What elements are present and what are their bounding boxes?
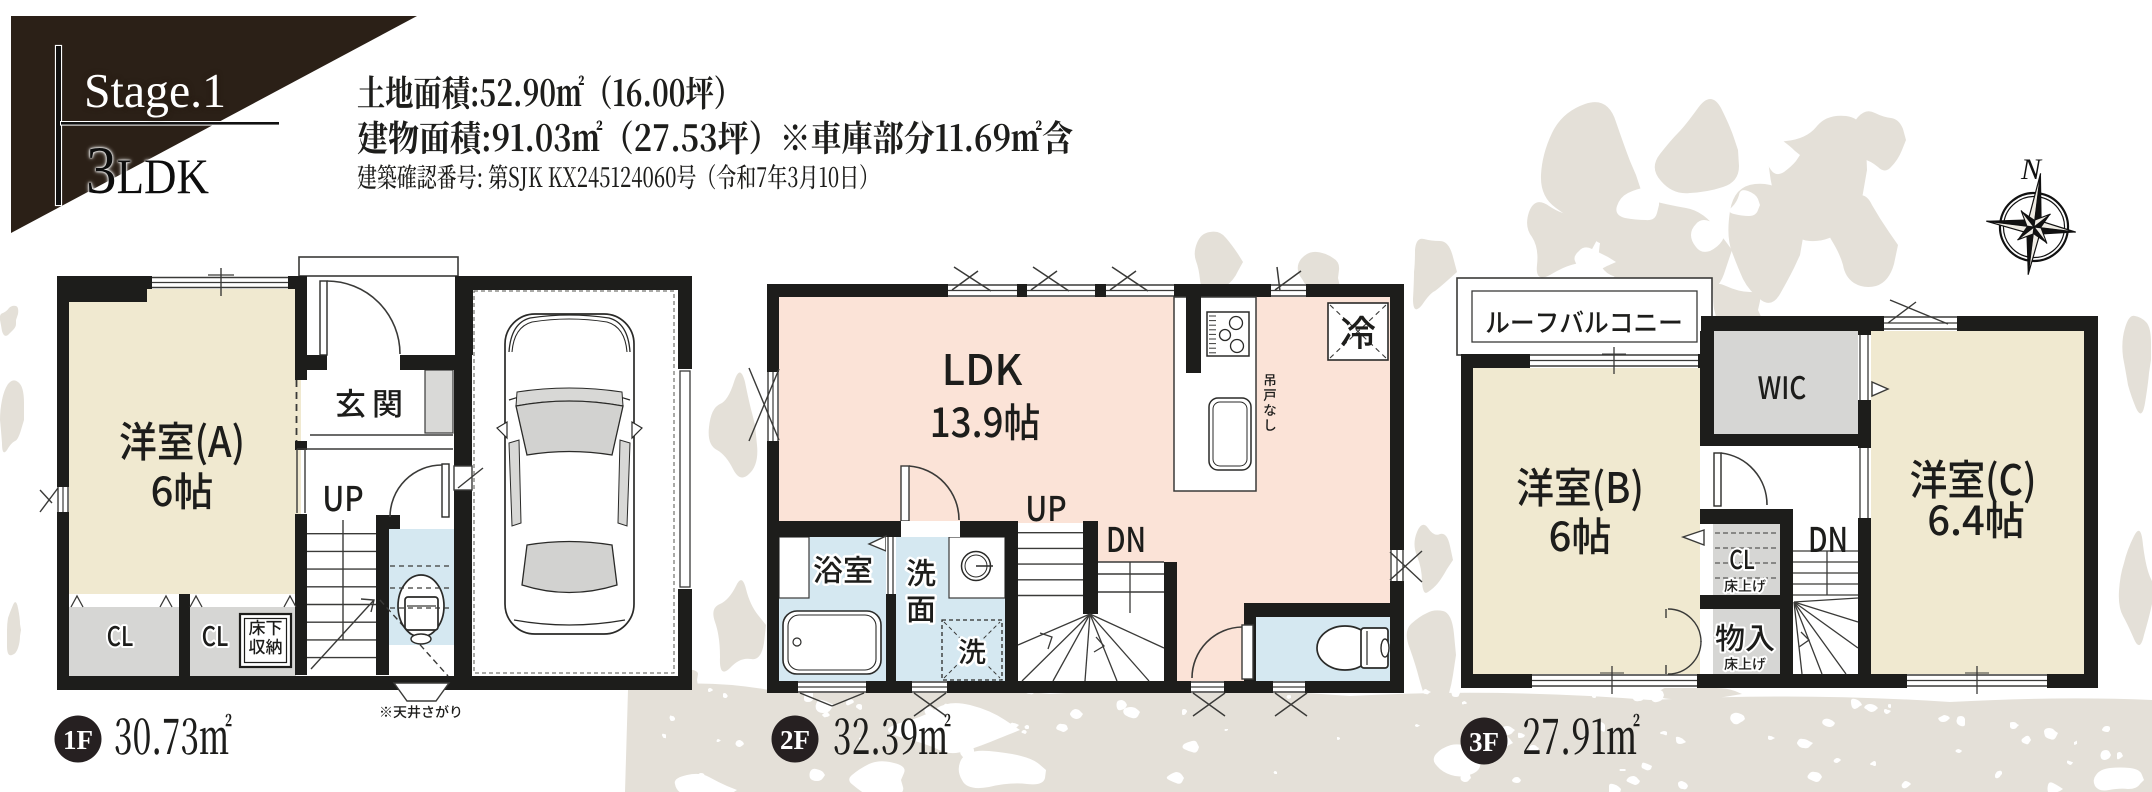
svg-text:N: N [2020,153,2043,186]
svg-text:1F: 1F [63,725,93,755]
svg-text:3F: 3F [1469,727,1499,757]
svg-text:Stage.1: Stage.1 [84,63,226,118]
svg-text:2F: 2F [780,725,810,755]
